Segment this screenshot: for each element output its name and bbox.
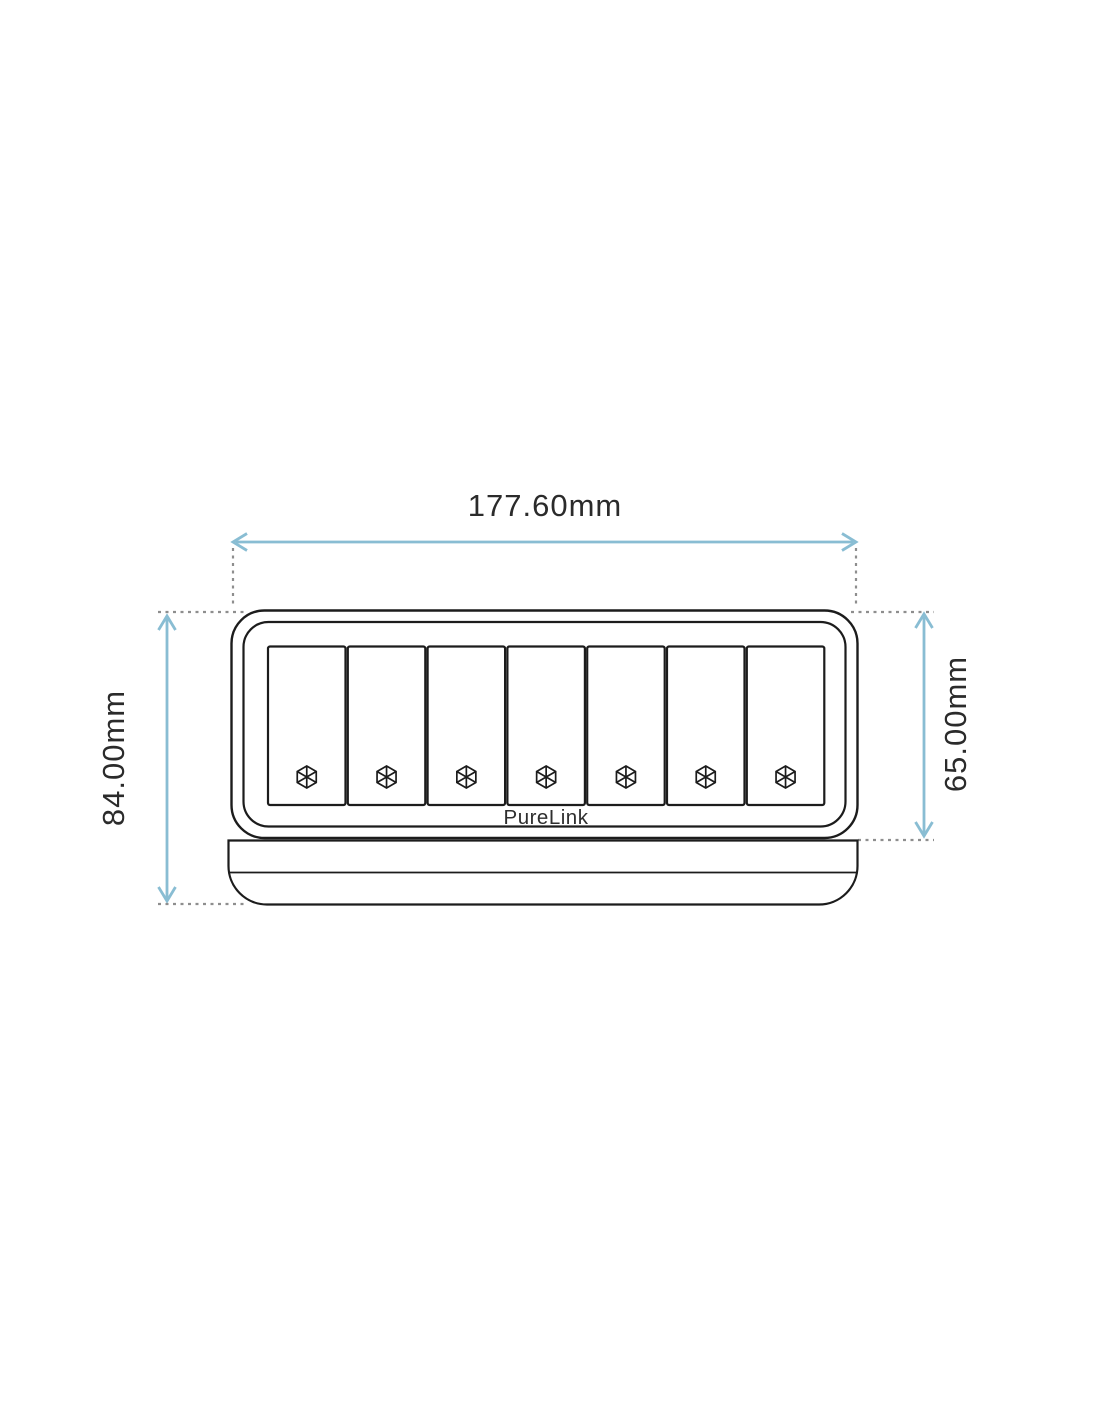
keypad-button-2 — [348, 647, 426, 806]
device-base — [229, 841, 858, 905]
panel-height-dimension-label: 65.00mm — [938, 656, 973, 792]
brand-logo-text: PureLink — [504, 806, 589, 829]
total-height-dimension-label: 84.00mm — [96, 690, 131, 826]
keypad-dimension-diagram: 177.60mm 84.00mm 65.00mm — [0, 0, 1100, 1422]
keypad-button-6 — [667, 647, 745, 806]
keypad-buttons — [268, 647, 824, 806]
panel-height-dimension: 65.00mm — [851, 612, 973, 840]
keypad-button-7 — [747, 647, 825, 806]
dimension-drawing-page: 177.60mm 84.00mm 65.00mm — [0, 0, 1100, 1422]
width-dimension: 177.60mm — [233, 488, 856, 607]
keypad-button-5 — [587, 647, 665, 806]
keypad-button-3 — [428, 647, 506, 806]
total-height-dimension: 84.00mm — [96, 612, 247, 904]
keypad-button-4 — [507, 647, 585, 806]
keypad-device: PureLink — [229, 611, 858, 905]
width-dimension-label: 177.60mm — [468, 488, 622, 523]
keypad-button-1 — [268, 647, 346, 806]
